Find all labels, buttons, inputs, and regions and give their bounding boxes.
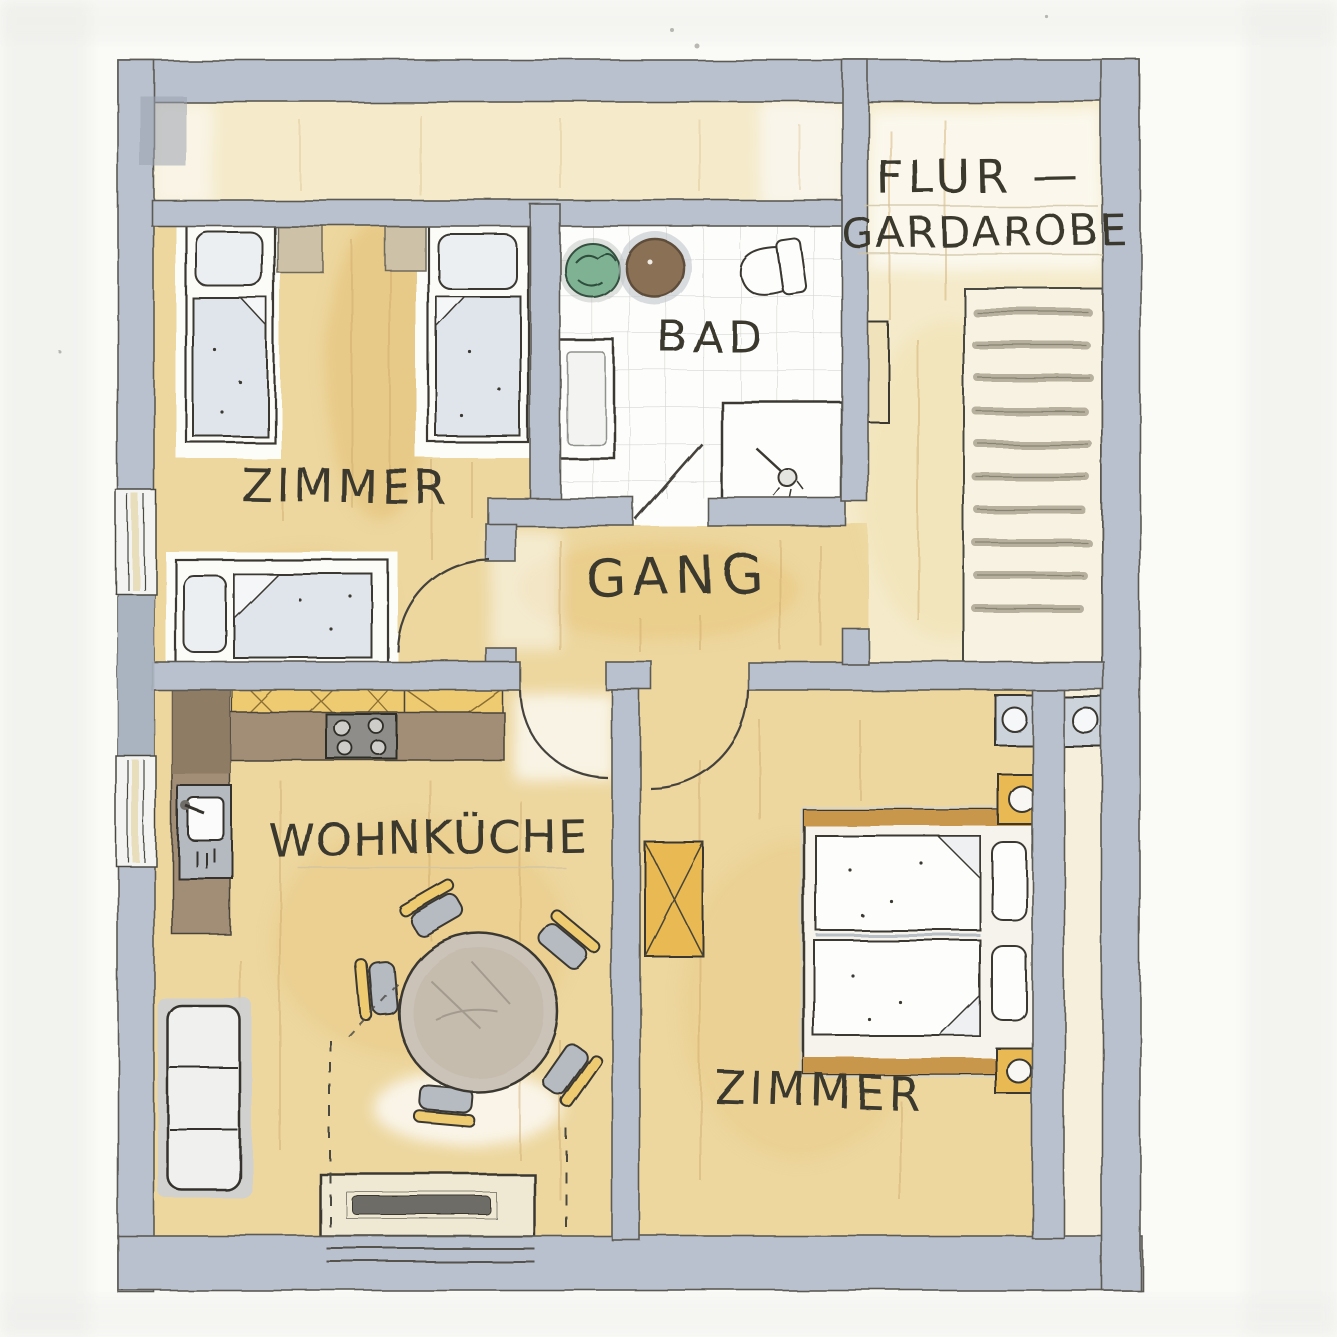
bad-door-threshold [634,498,708,526]
blanket [193,298,267,436]
washbasin-icon [558,340,614,458]
wall [530,204,560,504]
label-gang: GANG [585,544,770,610]
wall [748,662,1104,690]
counter-dark-corner [172,690,230,774]
pillow [992,946,1026,1020]
outer-wall-bottom [118,1236,1142,1290]
page: FLUR — GARDAROBE BAD ZIMMER GANG WOHNKÜC… [0,0,1337,1337]
label-wohnkueche: WOHNKÜCHE [268,808,587,868]
side-strip-floor [1064,690,1102,1238]
label-zimmer-bottom: ZIMMER [713,1059,924,1120]
wall [612,690,640,1240]
round-basin-icon [626,239,684,297]
pillow [184,576,226,652]
single-bed-2 [428,224,528,442]
window-left-2 [116,756,156,866]
top-strip-floor [152,102,846,204]
sideboard [320,1174,534,1236]
wall [152,662,520,690]
label-bad: BAD [657,312,766,363]
nightstand [277,226,323,272]
wall [488,498,634,526]
floorplan-svg: FLUR — GARDAROBE BAD ZIMMER GANG WOHNKÜC… [0,0,1337,1337]
double-bed [800,774,1046,1094]
wall [842,60,868,502]
pillow [196,232,262,286]
sofa [158,998,252,1198]
plan: FLUR — GARDAROBE BAD ZIMMER GANG WOHNKÜC… [59,16,1143,1292]
sink-icon [178,786,232,878]
stairs [964,288,1102,680]
wall [842,628,868,664]
wall [606,662,652,690]
wall-pier [118,594,154,756]
plant-icon [565,243,619,297]
single-bed-3 [176,560,388,666]
stove-icon [326,714,396,758]
wall [708,498,846,526]
window-left-1 [116,490,156,594]
blanket [436,296,520,436]
pillow [438,234,516,288]
wall-corner-shade [140,96,186,166]
wall [152,200,846,226]
wall [1032,690,1064,1238]
shower-icon [722,402,842,506]
nightstand [385,226,425,270]
outer-wall-top [118,60,1140,102]
label-zimmer-top: ZIMMER [240,457,450,515]
label-flur-line1: FLUR — [876,147,1083,205]
label-flur-line2: GARDAROBE [841,205,1128,259]
pillow [992,842,1026,920]
wall [486,524,516,562]
single-bed-1 [186,224,274,442]
